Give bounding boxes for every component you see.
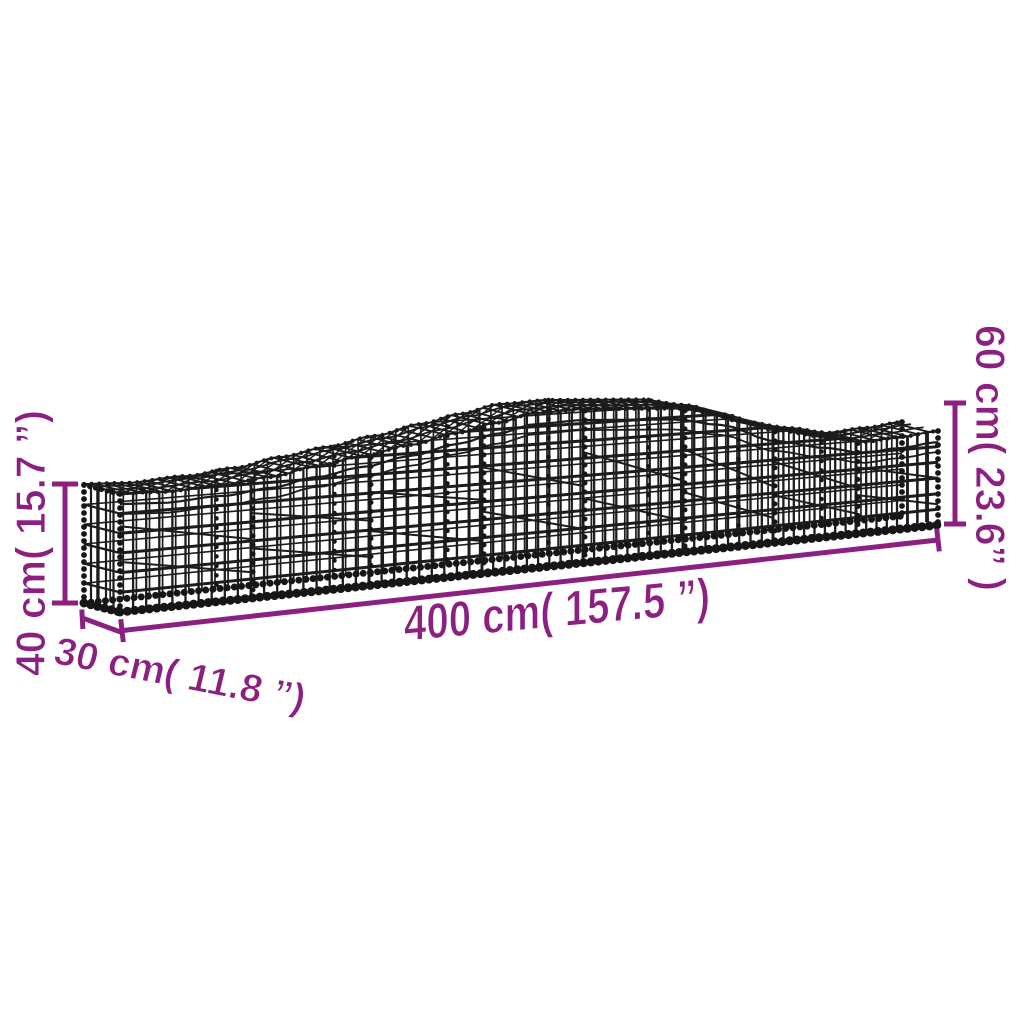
svg-text:40 cm( 15.7 ”): 40 cm( 15.7 ”): [7, 410, 54, 676]
svg-text:60 cm( 23.6” ): 60 cm( 23.6” ): [967, 325, 1014, 591]
